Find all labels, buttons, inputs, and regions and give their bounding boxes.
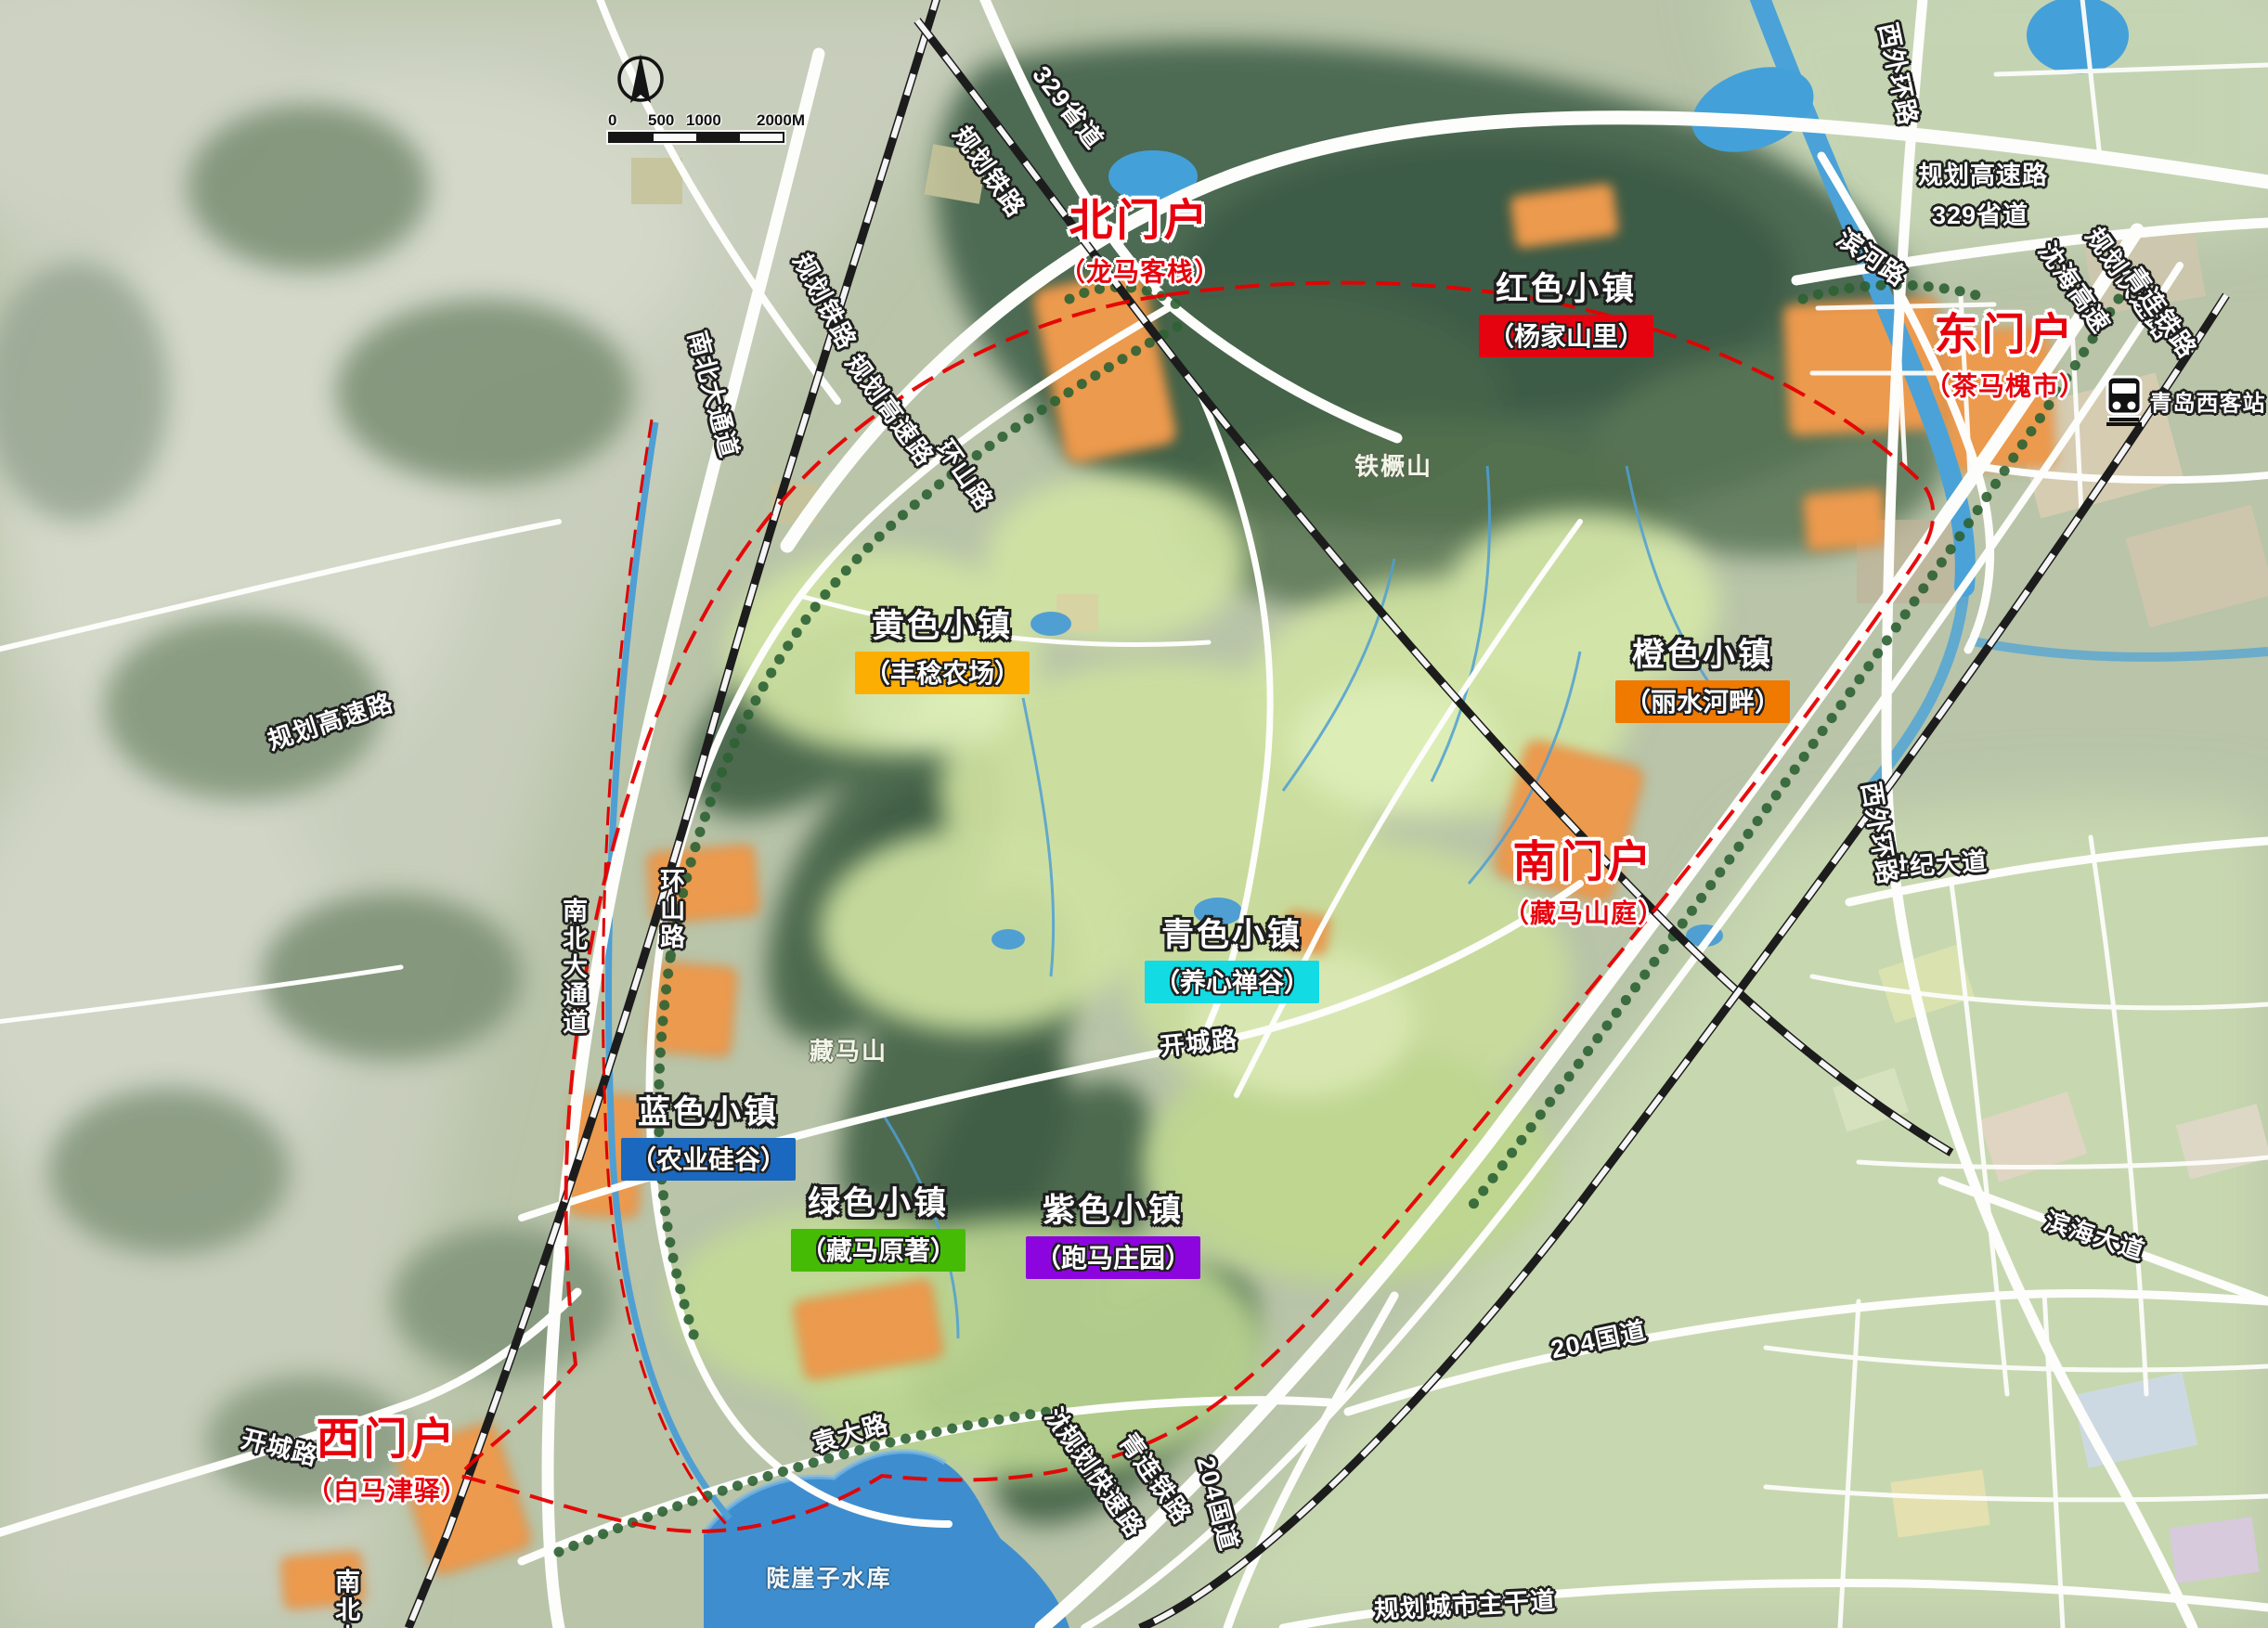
scale-tick: 1000 [686, 111, 721, 130]
town-blue: 蓝色小镇 （农业硅谷） [621, 1086, 796, 1181]
town-cyan-subtitle: （养心禅谷） [1145, 961, 1319, 1003]
town-blue-subtitle: （农业硅谷） [621, 1138, 796, 1181]
town-purple-title: 紫色小镇 [1043, 1184, 1184, 1232]
station-label: 青岛西客站 [2150, 392, 2266, 415]
town-red-subtitle: （杨家山里） [1479, 315, 1653, 357]
scale-bar: 0 500 1000 2000M [608, 111, 784, 143]
gate-south: 南门户 （藏马山庭） [1503, 826, 1665, 931]
train-station-icon [2100, 375, 2148, 433]
gate-west-subtitle: （白马津驿） [306, 1471, 468, 1508]
scale-tick: 0 [608, 111, 616, 130]
town-orange: 橙色小镇 （丽水河畔） [1615, 628, 1790, 723]
mountain-label-zangmashan: 藏马山 [810, 1039, 888, 1064]
scale-tick: 2000M [757, 111, 805, 130]
gate-west-title: 西门户 [316, 1403, 458, 1467]
planning-map: 0 500 1000 2000M 北门户 （龙马客栈） 东门户 （茶马槐市） 南… [0, 0, 2268, 1628]
town-red-title: 红色小镇 [1496, 263, 1637, 310]
town-cyan: 青色小镇 （养心禅谷） [1145, 909, 1319, 1003]
road-label-nanbei-south: 南北大通道 [332, 1569, 358, 1628]
town-cyan-title: 青色小镇 [1161, 909, 1302, 956]
scale-bar-ticks: 0 500 1000 2000M [608, 111, 784, 130]
town-yellow-title: 黄色小镇 [872, 600, 1013, 647]
reservoir-label: 陡崖子水库 [766, 1567, 891, 1591]
scale-tick: 500 [648, 111, 674, 130]
road-label-nanbei-west: 南北大通道 [560, 898, 586, 1037]
gate-north-title: 北门户 [1069, 185, 1211, 249]
town-green-subtitle: （藏马原著） [791, 1229, 966, 1272]
gate-east-subtitle: （茶马槐市） [1925, 367, 2086, 404]
town-yellow-subtitle: （丰稔农场） [855, 652, 1030, 694]
town-orange-subtitle: （丽水河畔） [1615, 680, 1790, 723]
town-purple: 紫色小镇 （跑马庄园） [1026, 1184, 1200, 1279]
town-yellow: 黄色小镇 （丰稔农场） [855, 600, 1030, 694]
gate-west: 西门户 （白马津驿） [306, 1403, 468, 1508]
scale-bar-segments [608, 132, 784, 143]
gate-east: 东门户 （茶马槐市） [1925, 299, 2086, 404]
road-label-planned-hwy-ne: 规划高速路 [1918, 162, 2048, 188]
road-label-huanshan-west: 环山路 [657, 868, 683, 951]
town-green: 绿色小镇 （藏马原著） [791, 1177, 966, 1272]
town-blue-title: 蓝色小镇 [638, 1086, 779, 1133]
gate-north: 北门户 （龙马客栈） [1059, 185, 1221, 290]
road-label-s329-east: 329省道 [1932, 202, 2028, 228]
town-orange-title: 橙色小镇 [1632, 628, 1773, 676]
town-red: 红色小镇 （杨家山里） [1479, 263, 1653, 357]
gate-north-subtitle: （龙马客栈） [1059, 252, 1221, 290]
mountain-label-tiejueshan: 铁橛山 [1354, 454, 1432, 479]
gate-east-title: 东门户 [1934, 299, 2076, 363]
town-green-title: 绿色小镇 [808, 1177, 949, 1224]
gate-south-subtitle: （藏马山庭） [1503, 894, 1665, 931]
town-purple-subtitle: （跑马庄园） [1026, 1236, 1200, 1279]
gate-south-title: 南门户 [1512, 826, 1654, 890]
